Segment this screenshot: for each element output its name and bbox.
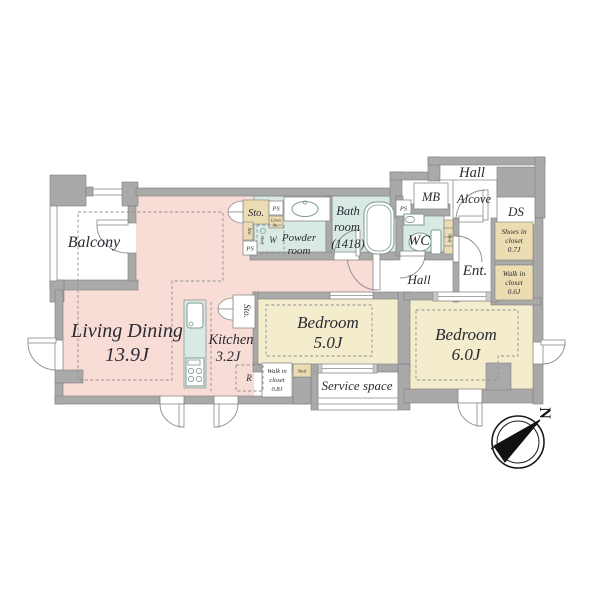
door-leaf-ent-hall: [453, 236, 459, 262]
label-bedroom6: Bedroom: [435, 325, 497, 344]
label-bedroom6-area: 6.0J: [452, 345, 482, 364]
door-leaf-corridor-hall: [373, 252, 380, 290]
wall-segment: [533, 364, 543, 404]
slider-tick: [433, 292, 438, 301]
compass: N: [491, 407, 553, 468]
wall-segment: [497, 167, 541, 197]
label-bedroom5-area: 5.0J: [314, 333, 344, 352]
label-wic06-1: Walk in: [503, 269, 526, 278]
label-alcove: Alcove: [456, 192, 491, 206]
door-gap: [334, 252, 359, 260]
balcony-railing-left: [50, 206, 57, 281]
door-leaf-bedroom6-right: [541, 340, 565, 345]
door-leaf-wc: [400, 251, 425, 256]
wall-segment: [404, 389, 458, 403]
wall-segment: [482, 389, 533, 403]
label-ps-1: PS: [271, 206, 280, 213]
label-linen-2: Sto.: [273, 223, 280, 228]
label-bath-1: Bath: [336, 204, 360, 218]
door-leaf-bottom-1: [179, 404, 184, 427]
label-refrigerator: R: [245, 373, 252, 383]
wall-segment: [533, 218, 543, 342]
wc-hand-basin: [404, 214, 424, 225]
label-sto-top: Sto.: [248, 208, 264, 219]
wall-segment: [373, 292, 398, 299]
wall-segment: [428, 157, 545, 165]
label-bath-2: room: [334, 220, 360, 234]
slider-tick: [486, 292, 491, 301]
label-sto-kitchen: Sto.: [242, 304, 252, 318]
label-balcony: Balcony: [68, 234, 121, 251]
wall-segment: [486, 363, 511, 390]
door-leaf-ld-left: [28, 338, 56, 343]
toilet-tank: [431, 230, 441, 254]
label-hall-outer: Hall: [458, 165, 485, 181]
wall-segment: [86, 187, 93, 196]
wall-segment: [55, 290, 63, 340]
label-ps-2: PS: [245, 246, 254, 253]
floor-plan: N Balcony Living Dining 13.9J Kitchen 3.…: [0, 0, 602, 613]
label-sto-small: Sto: [246, 227, 252, 234]
door-gap: [214, 396, 238, 404]
label-bedroom5: Bedroom: [297, 313, 359, 332]
wall-segment: [50, 175, 86, 206]
wall-segment: [535, 157, 545, 218]
label-wic06-3: 0.6J: [508, 287, 521, 296]
label-powder-1: Powder: [281, 232, 317, 244]
window-tick: [318, 364, 322, 373]
door-arc-ent-hall: [456, 236, 482, 262]
corridor: [254, 258, 374, 292]
label-hall-inner: Hall: [406, 272, 431, 287]
label-living-dining-area: 13.9J: [105, 344, 150, 366]
label-kitchen: Kitchen: [207, 332, 253, 348]
wall-segment: [253, 292, 330, 299]
label-entrance: Ent.: [462, 263, 488, 279]
label-ps-3: PS: [399, 206, 408, 213]
door-gap: [55, 340, 63, 370]
door-gap: [458, 389, 482, 403]
floor-plan-canvas: N Balcony Living Dining 13.9J Kitchen 3.…: [0, 0, 602, 613]
wall-segment: [404, 292, 433, 300]
door-arc-ld-left: [28, 343, 56, 370]
label-bath-3: (1418): [331, 237, 364, 251]
balcony-railing-top: [93, 189, 122, 195]
wall-segment: [128, 206, 136, 223]
label-shoes-closet-3: 0.7J: [508, 245, 521, 254]
label-shelf-wc: Shelf: [448, 234, 453, 244]
door-gap: [459, 216, 483, 222]
wall-segment: [55, 396, 160, 404]
door-leaf-bottom-2: [214, 404, 219, 427]
door-leaf-balcony: [97, 220, 128, 225]
label-wc: WC: [408, 233, 430, 249]
wall-segment: [55, 370, 83, 383]
compass-north-label: N: [536, 407, 553, 419]
label-living-dining: Living Dining: [70, 320, 183, 342]
wall-segment: [128, 253, 136, 281]
wall-segment: [122, 182, 138, 206]
window-tick: [373, 364, 377, 373]
door-gap: [160, 396, 184, 404]
label-wic06-2: closet: [505, 278, 523, 287]
label-shoes-closet-2: closet: [505, 236, 523, 245]
wall-segment: [184, 396, 214, 404]
wall-segment: [398, 292, 410, 364]
label-wic08-1: Walk in: [267, 368, 286, 375]
label-wic08-2: closet: [269, 377, 284, 384]
label-powder-2: room: [288, 245, 311, 257]
label-kitchen-area: 3.2J: [215, 349, 241, 365]
label-shelf-wic08: Shelf: [298, 369, 308, 374]
label-shelf-washer: Shelf: [260, 236, 265, 246]
wall-segment: [495, 260, 533, 265]
wall-segment: [136, 188, 396, 196]
label-duct-space: DS: [507, 204, 524, 219]
wall-segment: [293, 377, 311, 404]
wall-segment: [453, 218, 459, 236]
door-leaf-bedroom6-bottom: [477, 403, 482, 426]
label-meter-box: MB: [421, 190, 440, 204]
label-wic08-3: 0.8J: [271, 386, 283, 393]
label-service-space: Service space: [321, 378, 392, 393]
wall-segment: [311, 373, 318, 410]
label-shoes-closet-1: Shoes in: [501, 227, 526, 236]
